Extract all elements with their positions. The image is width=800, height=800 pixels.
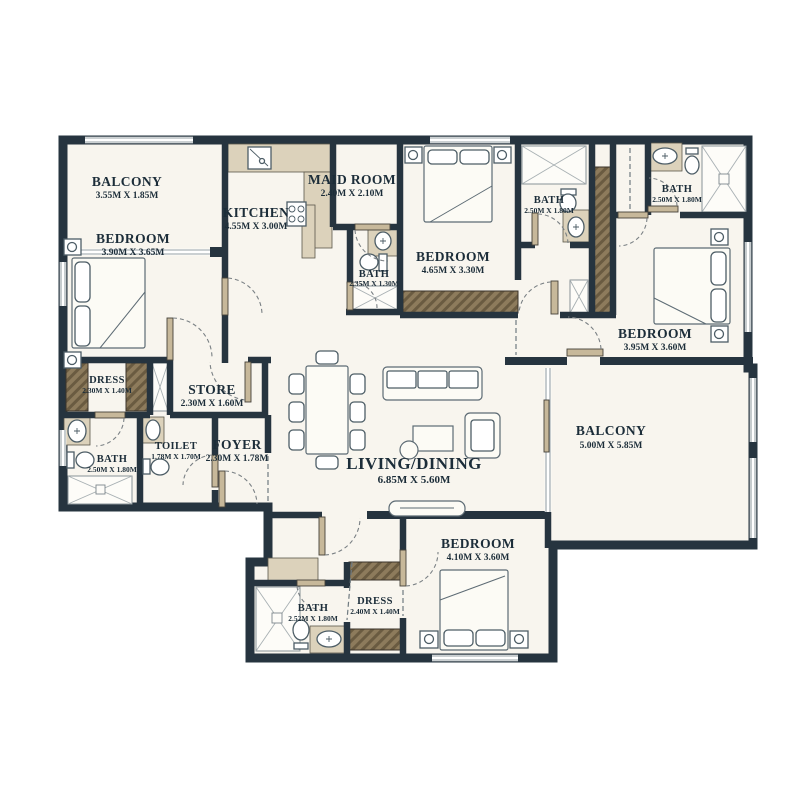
room-dims-bath-left: 2.50M X 1.80M [87,465,137,474]
room-label-bedroom-right: BEDROOM [618,326,692,341]
room-dims-bedroom-right: 3.95M X 3.60M [624,343,687,353]
shower-left-bath [68,476,132,504]
room-label-bath-bottom: BATH [298,603,329,614]
room-label-bedroom-bottom: BEDROOM [441,536,515,551]
room-dims-foyer: 2.30M X 1.78M [206,454,269,464]
room-label-toilet: TOILET [155,441,197,452]
room-label-bath-small-top: BATH [534,195,565,206]
room-dims-bedroom-top: 4.65M X 3.30M [422,266,485,276]
room-label-bedroom-top: BEDROOM [416,249,490,264]
room-dims-bedroom-bottom: 4.10M X 3.60M [447,553,510,563]
armchair [465,413,500,458]
room-dims-bedroom-left: 3.90M X 3.65M [102,248,165,258]
room-label-maid-room: MAID ROOM [308,172,396,187]
dress-bottom-wardrobe-top [349,562,403,580]
room-dims-store: 2.30M X 1.60M [181,399,244,409]
room-dims-balcony-right: 5.00M X 5.85M [580,441,643,451]
sofa [383,367,482,400]
hall-closet [268,558,318,582]
kitchen-counter-top [228,144,332,172]
room-dims-toilet: 1.78M X 1.70M [151,452,201,461]
room-label-bath-top-right: BATH [662,184,693,195]
room-label-balcony-tl: BALCONY [92,174,162,189]
shower-small-bath [522,146,586,184]
room-label-dress-left: DRESS [89,375,125,386]
room-label-balcony-right: BALCONY [576,423,646,438]
room-label-living-dining: LIVING/DINING [346,454,482,473]
room-dims-kitchen: 4.55M X 3.00M [225,222,288,232]
stove [287,202,306,226]
room-dims-bath-top-right: 2.50M X 1.80M [652,195,702,204]
tv-console [389,501,465,516]
floor-plan: BALCONY 3.55M X 1.85M BEDROOM 3.90M X 3.… [0,0,800,800]
room-dims-bath-small-top: 2.50M X 1.80M [524,206,574,215]
balcony-sliding-door [544,400,549,452]
room-label-bath-left: BATH [97,454,128,465]
room-dims-bath-mid: 2.35M X 1.30M [349,279,399,288]
bedroom2-wardrobe [403,291,518,313]
room-dims-maid-room: 2.40M X 2.10M [321,189,384,199]
room-label-bedroom-left: BEDROOM [96,231,170,246]
shower-top-right [702,146,746,212]
room-dims-balcony-tl: 3.55M X 1.85M [96,191,159,201]
room-label-dress-bottom: DRESS [357,596,393,607]
kitchen-sink [248,147,271,169]
room-dims-dress-bottom: 2.40M X 1.40M [350,607,400,616]
room-label-foyer: FOYER [212,437,261,452]
dress-bottom-wardrobe-bottom [349,629,403,650]
room-dims-dress-left: 2.30M X 1.40M [82,386,132,395]
room-label-store: STORE [188,382,236,397]
room-label-kitchen: KITCHEN [223,205,290,220]
floor-plan-svg: BALCONY 3.55M X 1.85M BEDROOM 3.90M X 3.… [0,0,800,800]
room-dims-living-dining: 6.85M X 5.60M [378,474,451,486]
room-dims-bath-bottom: 2.52M X 1.80M [288,614,338,623]
